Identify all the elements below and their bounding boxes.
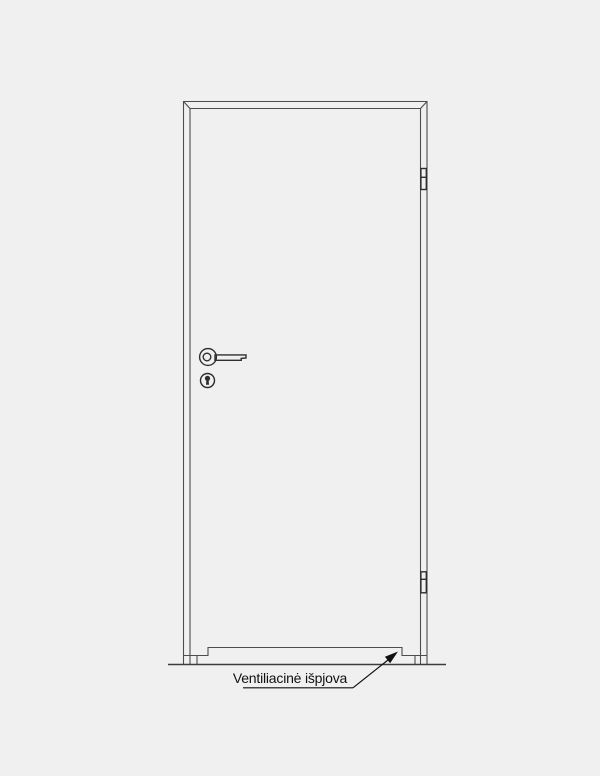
lever-handle — [200, 349, 246, 366]
keyhole-slot — [206, 380, 209, 385]
annotation-label: Ventiliacinė išpjova — [233, 670, 348, 686]
frame-mitre-top-right — [421, 102, 428, 109]
door-frame — [184, 101, 428, 664]
handle-rosette-outer — [200, 349, 217, 366]
hinge-bottom — [421, 572, 426, 593]
hinge-bottom-plate — [421, 572, 426, 593]
handle-rosette-inner — [203, 353, 211, 361]
drawing-canvas: Ventiliacinė išpjova — [0, 0, 600, 776]
hinge-top — [421, 169, 426, 190]
handle-lever-bar — [215, 355, 246, 360]
frame-mitre-top-left — [184, 102, 191, 109]
door-elevation-drawing: Ventiliacinė išpjova — [0, 0, 600, 776]
ventilation-cutout — [184, 648, 428, 656]
hinge-top-plate — [421, 169, 426, 190]
keyhole — [201, 374, 215, 388]
